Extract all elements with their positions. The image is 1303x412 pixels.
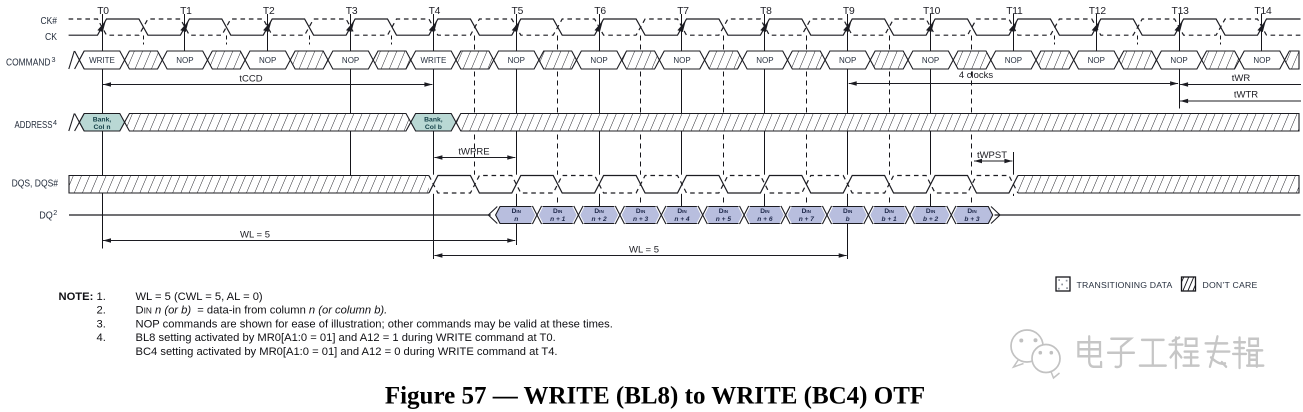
svg-text:n + 1: n + 1 <box>550 216 566 223</box>
svg-text:b: b <box>846 216 850 223</box>
svg-text:DIN: DIN <box>719 208 729 215</box>
svg-text:NOP: NOP <box>1253 56 1270 65</box>
svg-text:NOP commands are shown for eas: NOP commands are shown for ease of illus… <box>136 318 613 330</box>
svg-text:4: 4 <box>53 118 57 127</box>
svg-text:n + 2: n + 2 <box>591 216 607 223</box>
svg-text:T2: T2 <box>263 6 275 17</box>
svg-text:b + 1: b + 1 <box>881 216 897 223</box>
svg-text:Figure 57 — WRITE (BL8) to WRI: Figure 57 — WRITE (BL8) to WRITE (BC4) O… <box>385 383 925 410</box>
svg-text:4 clocks: 4 clocks <box>959 70 994 81</box>
svg-text:T4: T4 <box>429 6 441 17</box>
svg-text:T11: T11 <box>1006 6 1023 17</box>
svg-text:tCCD: tCCD <box>239 74 262 85</box>
svg-text:NOP: NOP <box>1005 56 1022 65</box>
svg-text:NOP: NOP <box>508 56 525 65</box>
svg-text:NOP: NOP <box>590 56 607 65</box>
svg-text:3.: 3. <box>97 318 106 330</box>
svg-text:T12: T12 <box>1089 6 1107 17</box>
svg-text:n + 5: n + 5 <box>716 216 732 223</box>
svg-text:DON’T CARE: DON’T CARE <box>1203 280 1258 290</box>
svg-text:NOP: NOP <box>922 56 939 65</box>
svg-text:DIN: DIN <box>802 208 812 215</box>
svg-text:COMMAND: COMMAND <box>6 57 51 68</box>
svg-text:BL8 setting activated by MR0[A: BL8 setting activated by MR0[A1:0 = 01] … <box>136 332 556 344</box>
svg-text:DIN: DIN <box>594 208 604 215</box>
svg-text:2: 2 <box>53 208 57 217</box>
svg-text:tWR: tWR <box>1232 73 1251 84</box>
svg-text:DIN: DIN <box>967 208 977 215</box>
svg-text:n + 6: n + 6 <box>757 216 773 223</box>
svg-text:DQS, DQS#: DQS, DQS# <box>12 179 59 190</box>
svg-text:NOP: NOP <box>259 56 276 65</box>
svg-text:T7: T7 <box>677 6 689 17</box>
svg-text:NOP: NOP <box>176 56 193 65</box>
svg-text:NOP: NOP <box>342 56 359 65</box>
svg-text:b + 3: b + 3 <box>964 216 980 223</box>
svg-text:NOP: NOP <box>839 56 856 65</box>
svg-text:DIN: DIN <box>760 208 770 215</box>
svg-text:T5: T5 <box>511 6 523 17</box>
svg-text:WRITE: WRITE <box>89 56 115 65</box>
svg-text:3: 3 <box>52 55 56 64</box>
svg-text:WRITE: WRITE <box>421 56 447 65</box>
svg-text:n + 3: n + 3 <box>633 216 649 223</box>
svg-text:NOP: NOP <box>1170 56 1187 65</box>
svg-text:n: n <box>514 216 518 223</box>
svg-text:CK#: CK# <box>41 16 58 27</box>
svg-text:4.: 4. <box>97 332 106 344</box>
svg-text:T9: T9 <box>843 6 855 17</box>
svg-text:DIN: DIN <box>512 208 522 215</box>
svg-text:ADDRESS: ADDRESS <box>15 120 53 131</box>
svg-text:n + 7: n + 7 <box>799 216 815 223</box>
svg-text:Bank,: Bank, <box>424 117 443 124</box>
svg-text:T8: T8 <box>760 6 772 17</box>
svg-text:b + 2: b + 2 <box>923 216 939 223</box>
svg-text:T13: T13 <box>1172 6 1190 17</box>
svg-text:WL = 5: WL = 5 <box>240 229 270 240</box>
svg-text:T1: T1 <box>180 6 192 17</box>
svg-text:TRANSITIONING DATA: TRANSITIONING DATA <box>1077 280 1173 290</box>
svg-text:CK: CK <box>45 32 57 43</box>
svg-text:n + 4: n + 4 <box>674 216 690 223</box>
svg-text:DIN: DIN <box>884 208 894 215</box>
svg-text:Col b: Col b <box>425 124 442 131</box>
svg-text:T3: T3 <box>346 6 358 17</box>
svg-text:T6: T6 <box>594 6 606 17</box>
svg-text:DIN: DIN <box>677 208 687 215</box>
svg-text:T14: T14 <box>1254 6 1272 17</box>
svg-text:2.: 2. <box>97 305 106 317</box>
svg-text:tWPST: tWPST <box>977 150 1007 161</box>
svg-text:T0: T0 <box>97 6 109 17</box>
svg-text:BC4 setting activated by MR0[A: BC4 setting activated by MR0[A1:0 = 01] … <box>136 346 558 358</box>
svg-text:Col n: Col n <box>94 124 111 131</box>
svg-text:WL = 5: WL = 5 <box>629 244 659 255</box>
svg-text:DIN: DIN <box>926 208 936 215</box>
svg-text:DIN: DIN <box>636 208 646 215</box>
svg-text:NOP: NOP <box>756 56 773 65</box>
svg-text:Bank,: Bank, <box>93 117 112 124</box>
svg-text:DQ: DQ <box>39 210 53 221</box>
svg-text:tWTR: tWTR <box>1234 90 1258 101</box>
svg-text:T10: T10 <box>923 6 941 17</box>
svg-text:tWPRE: tWPRE <box>458 147 489 158</box>
svg-text:DIN: DIN <box>843 208 853 215</box>
svg-text:1.: 1. <box>97 291 106 303</box>
svg-text:DIN n (or b) = data-in from c: DIN n (or b) = data-in from column n (or… <box>136 305 388 317</box>
svg-text:NOP: NOP <box>673 56 690 65</box>
svg-text:NOTE:: NOTE: <box>59 291 94 303</box>
svg-text:DIN: DIN <box>553 208 563 215</box>
svg-text:NOP: NOP <box>1088 56 1105 65</box>
svg-text:WL = 5 (CWL = 5, AL = 0): WL = 5 (CWL = 5, AL = 0) <box>136 291 263 303</box>
